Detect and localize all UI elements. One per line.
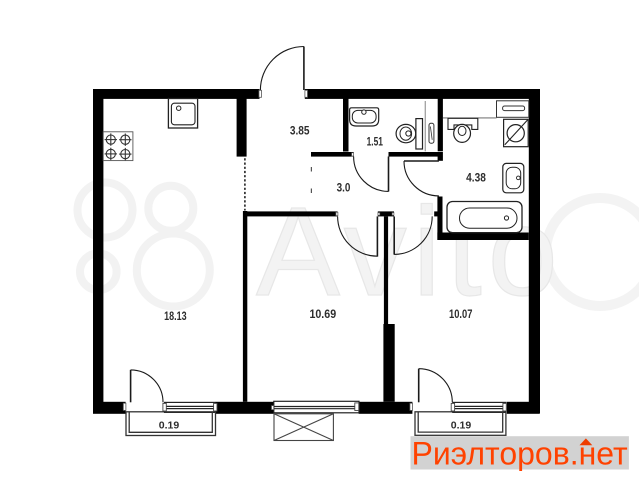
svg-text:10.07: 10.07 bbox=[449, 307, 473, 321]
svg-text:3.0: 3.0 bbox=[337, 181, 351, 195]
svg-text:0.19: 0.19 bbox=[451, 420, 472, 431]
svg-text:18.13: 18.13 bbox=[164, 309, 187, 323]
svg-text:4.38: 4.38 bbox=[466, 170, 486, 184]
svg-text:1.51: 1.51 bbox=[367, 134, 384, 148]
svg-text:10.69: 10.69 bbox=[309, 307, 336, 321]
svg-text:Риэлторов.нет: Риэлторов.нет bbox=[412, 436, 629, 472]
svg-text:3.85: 3.85 bbox=[290, 123, 310, 137]
svg-text:0.19: 0.19 bbox=[159, 420, 180, 431]
